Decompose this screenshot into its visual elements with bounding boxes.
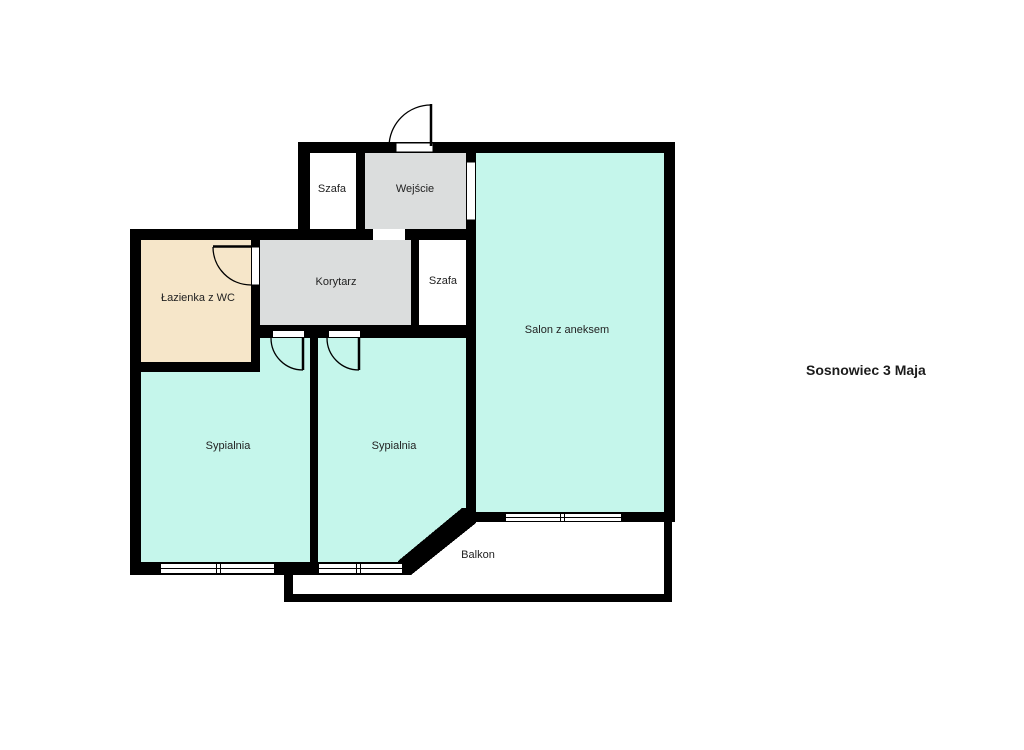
floorplan-page: Szafa Wejście Salon z aneksem Korytarz S… [0,0,1024,750]
room-szafa-right-label: Szafa [429,275,458,287]
wall-top-left [298,142,310,240]
room-fills [140,152,665,563]
room-balkon-label: Balkon [461,549,495,561]
wall-korytarz-top-right [405,229,475,240]
sypialnia-left-door-threshold [273,331,305,338]
window-sypialnia-left [161,564,275,574]
sypialnia-mid-door-threshold [329,331,361,338]
window-salon [506,514,622,522]
wall-lazienka-bottom [130,362,260,372]
wall-right [664,142,675,522]
lazienka-door-threshold [252,247,260,285]
room-sypialnia-left-label: Sypialnia [206,440,252,452]
plan-title: Sosnowiec 3 Maja [806,362,926,378]
wall-szafa-wejscie [356,142,365,229]
wall-szafa-right-left [411,240,419,325]
wall-balkon-right [664,522,672,602]
opening-wejscie-korytarz [373,229,405,240]
room-szafa-top-label: Szafa [318,183,347,195]
room-salon-label: Salon z aneksem [525,324,609,336]
wall-balkon-bottom [284,594,672,602]
room-sypialnia-mid-label: Sypialnia [372,440,418,452]
wall-lazienka-right-top [251,240,260,247]
wall-between-bedrooms [310,325,318,575]
room-wejscie-label: Wejście [396,183,434,195]
room-lazienka-label: Łazienka z WC [161,292,235,304]
entry-door-swing [389,104,431,147]
entry-door-threshold [396,143,433,152]
window-sypialnia-mid [319,564,403,574]
wall-top [298,142,675,153]
wall-left [130,229,141,575]
opening-wejscie-salon [467,162,476,220]
wall-korytarz-top-left [251,229,373,240]
room-korytarz-label: Korytarz [316,276,357,288]
